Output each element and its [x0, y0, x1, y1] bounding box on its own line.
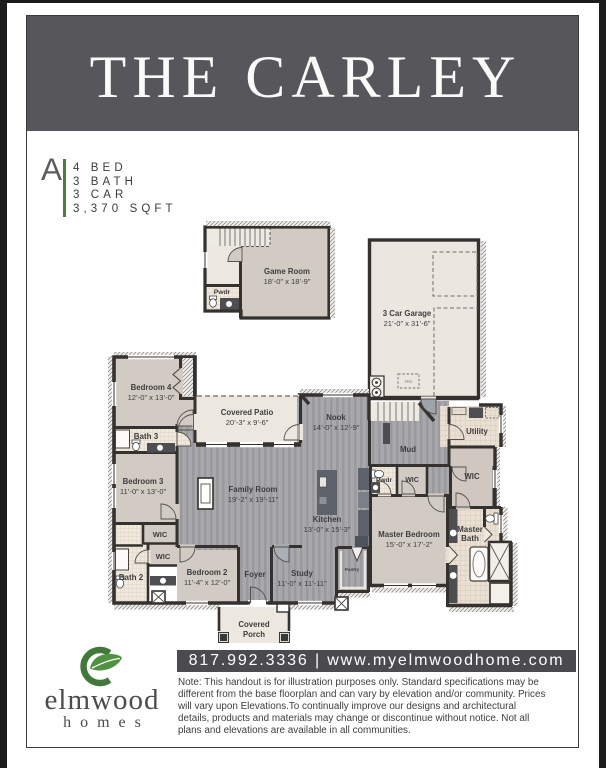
svg-text:20’-3” x 9’-6”: 20’-3” x 9’-6” [226, 418, 269, 427]
svg-text:Family Room: Family Room [229, 485, 278, 494]
svg-text:WIC: WIC [405, 477, 419, 484]
svg-text:WIC: WIC [464, 472, 480, 481]
svg-text:18’-0” x 18’-9”: 18’-0” x 18’-9” [264, 277, 311, 286]
svg-text:Master: Master [457, 525, 483, 534]
svg-text:3 Car Garage: 3 Car Garage [383, 309, 432, 318]
svg-text:11’-0” x 13’-0”: 11’-0” x 13’-0” [120, 487, 167, 496]
svg-text:Nook: Nook [326, 413, 346, 422]
svg-text:Game Room: Game Room [264, 267, 310, 276]
svg-text:Bedroom 4: Bedroom 4 [131, 383, 172, 392]
svg-text:Utility: Utility [466, 427, 488, 436]
svg-text:WIC: WIC [153, 530, 168, 539]
svg-text:FRZ: FRZ [405, 379, 413, 384]
svg-text:Pwdr: Pwdr [214, 289, 231, 296]
svg-text:Bath: Bath [461, 534, 479, 543]
svg-text:Pantry: Pantry [345, 567, 360, 572]
svg-text:Pwdr: Pwdr [376, 477, 393, 484]
svg-text:Foyer: Foyer [244, 570, 265, 579]
svg-text:Bath 2: Bath 2 [119, 573, 144, 582]
svg-text:Mud: Mud [400, 445, 416, 454]
svg-text:Bedroom 2: Bedroom 2 [187, 568, 228, 577]
svg-text:11’-0” x 11’-11”: 11’-0” x 11’-11” [277, 579, 327, 588]
svg-text:Master Bedroom: Master Bedroom [378, 530, 440, 539]
svg-text:Porch: Porch [243, 630, 265, 639]
svg-text:15’-0” x 17’-2”: 15’-0” x 17’-2” [386, 540, 433, 549]
svg-text:19’-2” x 19’-11”: 19’-2” x 19’-11” [228, 495, 279, 504]
svg-text:Covered: Covered [238, 620, 269, 629]
svg-text:Covered Patio: Covered Patio [221, 408, 274, 417]
svg-text:13’-0” x 15’-3”: 13’-0” x 15’-3” [304, 525, 351, 534]
svg-text:Bath 3: Bath 3 [134, 432, 159, 441]
svg-text:Study: Study [291, 569, 313, 578]
svg-text:Bedroom 3: Bedroom 3 [123, 477, 164, 486]
svg-text:WIC: WIC [156, 552, 171, 561]
svg-text:21’-0” x 31’-6”: 21’-0” x 31’-6” [384, 319, 431, 328]
svg-text:12’-0” x 13’-0”: 12’-0” x 13’-0” [128, 393, 175, 402]
svg-text:Kitchen: Kitchen [313, 515, 342, 524]
svg-text:14’-0” x 12’-9”: 14’-0” x 12’-9” [313, 423, 360, 432]
svg-text:11’-4” x 12’-0”: 11’-4” x 12’-0” [184, 578, 231, 587]
